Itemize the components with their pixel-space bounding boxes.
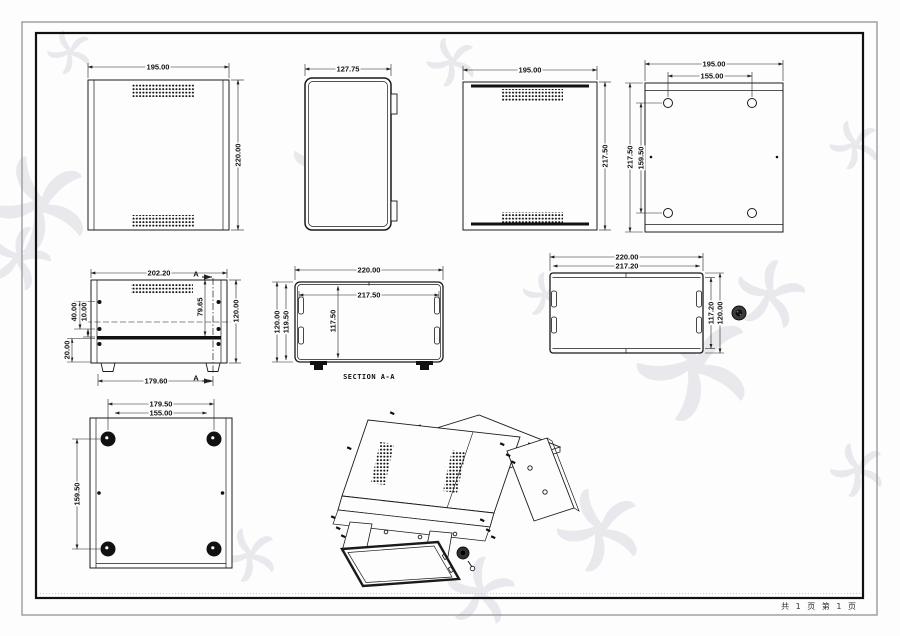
foot [310, 361, 327, 370]
dim-panel-hole-width: 155.00 [700, 72, 725, 80]
mount-panel-view [625, 60, 783, 232]
dim-section-mid-height: 119.50 [282, 310, 290, 335]
dim-side-width: 127.75 [336, 65, 361, 73]
front-view [88, 63, 244, 230]
dim-bottom-feet-height: 159.50 [73, 482, 81, 507]
bottom-view [72, 399, 232, 568]
dim-panel-width: 195.00 [702, 60, 727, 68]
dim-back-width: 202.20 [147, 269, 172, 277]
exploded-bottom-tray [342, 542, 459, 586]
section-view [272, 266, 443, 370]
back-assembly-view [67, 269, 241, 386]
dim-section-inner-height: 117.50 [329, 309, 337, 334]
dim-bottom-feet-width: 179.50 [149, 400, 174, 408]
dim-cover-outer-height: 120.00 [716, 301, 724, 326]
dim-front-height: 220.00 [234, 143, 242, 168]
dim-cover-inner-height: 117.20 [707, 301, 715, 326]
section-caption: SECTION A-A [343, 373, 395, 381]
dim-panel-height: 217.50 [626, 145, 634, 170]
exploded-foot [457, 547, 475, 571]
foot [101, 363, 115, 372]
drawing-canvas [0, 0, 900, 636]
dim-cover-outer-width: 220.00 [615, 253, 640, 261]
dim-bottom-hole-width: 155.00 [149, 409, 174, 417]
dim-cover-inner-width: 217.20 [615, 262, 640, 270]
section-marker-bottom: A [192, 374, 199, 382]
dim-section-inner-width: 217.50 [357, 291, 382, 299]
dim-front-width: 195.00 [146, 63, 171, 71]
side-view [305, 64, 397, 230]
grommet-detail [732, 306, 746, 320]
exploded-rear-panel [507, 438, 579, 521]
dim-section-outer-width: 220.00 [357, 266, 382, 274]
page-info: 共 1 页 第 1 页 [781, 601, 858, 612]
dim-back-40: 40.00 [70, 302, 78, 323]
exploded-view [331, 411, 579, 586]
section-marker-top: A [192, 270, 199, 278]
dim-back-height: 120.00 [232, 299, 240, 324]
dim-rear-width: 195.00 [518, 66, 543, 74]
dim-back-20: 20.00 [63, 340, 71, 361]
dim-section-outer-height: 120.00 [273, 310, 281, 335]
dim-back-base-width: 179.60 [144, 377, 169, 385]
dim-panel-hole-height: 159.50 [637, 146, 645, 171]
dim-back-10: 10.00 [80, 302, 88, 323]
dim-rear-height: 217.50 [601, 144, 609, 169]
drawing-page: 195.00 220.00 127.75 195.00 217.50 195.0… [0, 0, 900, 636]
foot [416, 361, 433, 370]
rear-view [463, 66, 611, 230]
dim-back-vent-pos: 79.65 [196, 297, 204, 318]
